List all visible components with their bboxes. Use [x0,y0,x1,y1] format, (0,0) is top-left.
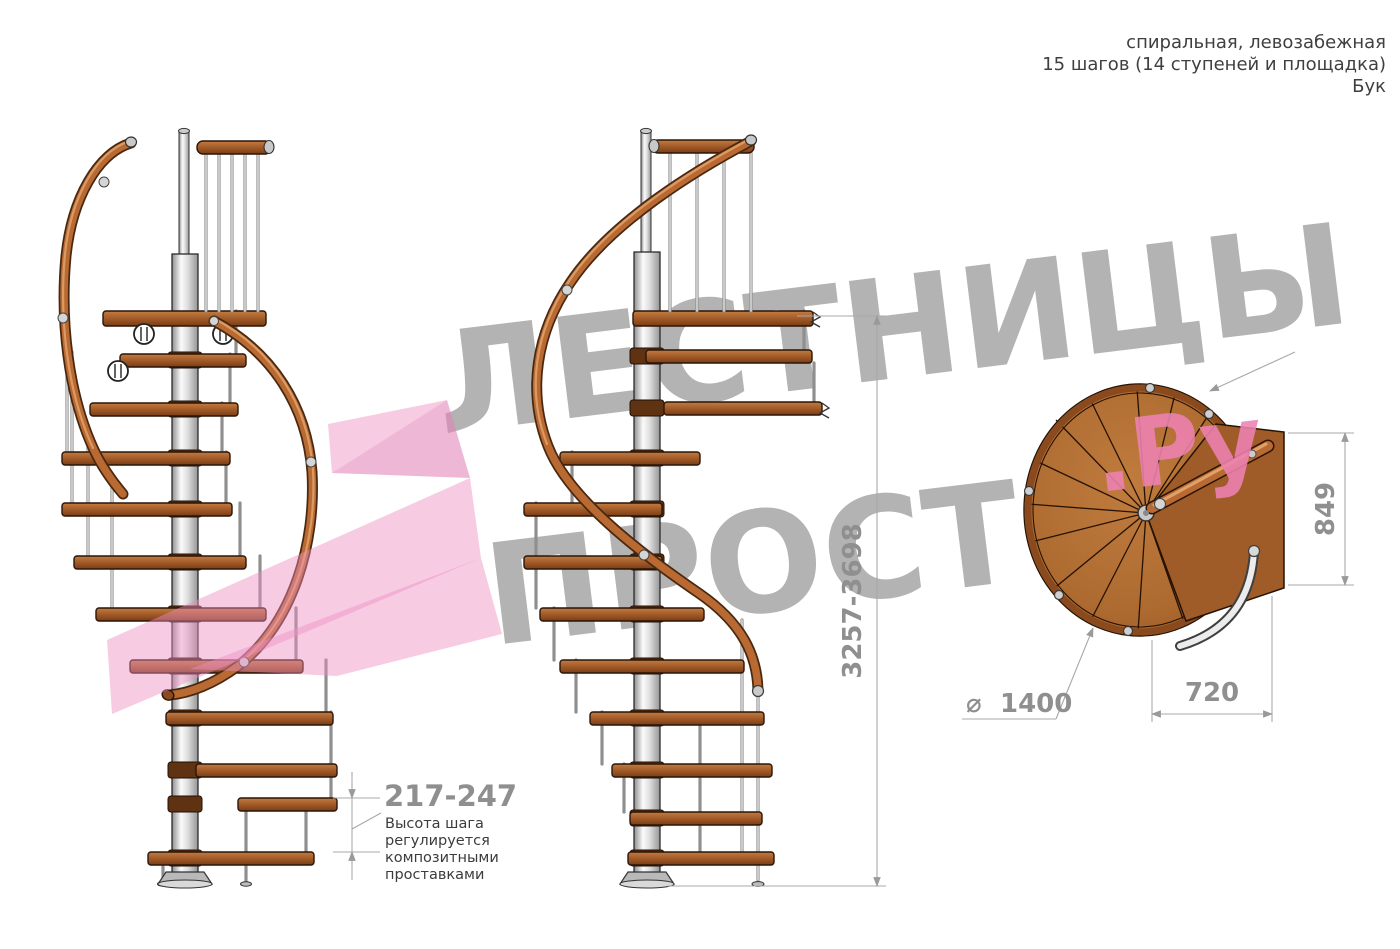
landing-depth-value: 849 [1311,482,1341,536]
svg-text:регулируется: регулируется [385,833,490,849]
title-steps: 15 шагов (14 ступеней и площадка) [1042,54,1386,75]
center-hub-pin [1143,510,1149,516]
landing-width-value: 720 [1185,678,1239,708]
handrail-end-cap [649,140,659,153]
step-height-value: 217-247 [384,779,517,813]
dimension-diameter: ⌀ 1400 [962,628,1093,719]
handrail-top-cap [126,137,137,147]
landing-handrail-bar [197,141,271,154]
svg-text:Высота шага: Высота шага [385,816,484,832]
landing-board [633,311,813,326]
step-height-note: Высота шага регулируется композитными пр… [385,816,499,883]
drawing-canvas: ЛЕСТНИЦЫ ПРОСТО [0,0,1400,949]
landing-railing [197,141,274,312]
pole-cap [179,128,190,133]
diameter-value: 1400 [1000,689,1072,719]
handrail-top-cap [746,135,757,145]
dimension-landing-depth: 849 [1288,433,1354,585]
svg-text:композитными: композитными [385,850,499,866]
title-type: спиральная, левозабежная [1126,32,1386,53]
dimension-step-height: 217-247 Высота шага регулируется компози… [333,772,517,883]
pole-base [620,872,674,888]
front-elevation-view [58,128,337,888]
title-block: спиральная, левозабежная 15 шагов (14 ст… [1042,32,1386,97]
landing-board [103,311,266,326]
handrail-bottom-cap [753,686,764,697]
watermark-suffix: .Ру [1087,383,1269,515]
svg-text:проставками: проставками [385,867,484,883]
pole-cap [641,128,652,133]
handrail-end-cap [264,141,274,154]
pole-base [158,872,212,888]
total-height-value: 3257-3698 [838,523,868,679]
title-material: Бук [1352,76,1386,97]
diameter-symbol: ⌀ [966,689,982,719]
staircase-technical-drawing: ЛЕСТНИЦЫ ПРОСТО [0,0,1400,949]
